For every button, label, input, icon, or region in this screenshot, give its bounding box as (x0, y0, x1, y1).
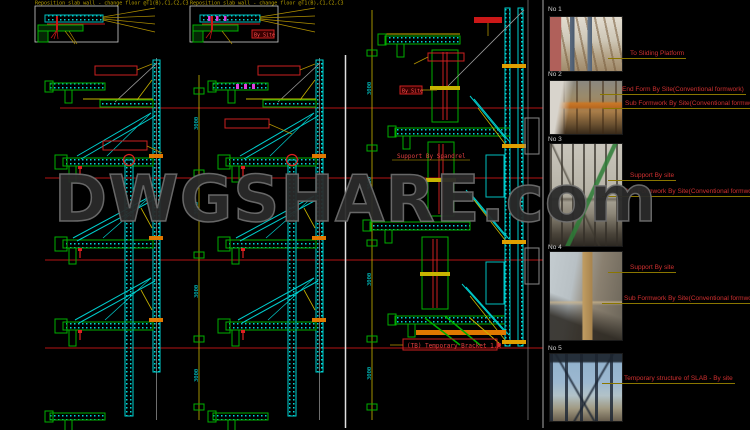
photo-label-5: No 5 (548, 346, 562, 353)
photo-annotation: Sub Formwork By Site(Conventional formwo… (603, 100, 750, 109)
dimension-line-middle: 3000 3000 3000 3000 (367, 10, 377, 420)
bracket-note: (TB) Temporary Bracket 1.X (390, 339, 501, 350)
dim-label: 3000 (367, 82, 373, 95)
photo-no-1 (549, 16, 623, 72)
photo-annotation: Sub Formwork By Site(Conventional formwo… (602, 295, 750, 304)
photo-label-2: No 2 (548, 72, 562, 79)
photo-annotation: End Form By Site(Conventional formwork) (600, 86, 746, 95)
photo-label-1: No 1 (548, 7, 562, 14)
dim-label: 3000 (194, 117, 200, 130)
dim-label: 3000 (194, 202, 200, 215)
photo-no-5 (549, 353, 623, 422)
middle-section: By Site Support By Spandrel (TB) Tempora… (363, 0, 539, 420)
dimension-line-left: 3000 3000 3000 3000 (194, 75, 204, 420)
by-site-label: By Site (252, 30, 275, 39)
detail-box-1-title: Reposition slab wall - change floor @T1(… (35, 1, 189, 7)
dim-label: 3000 (194, 369, 200, 382)
svg-text:By Site: By Site (254, 33, 275, 39)
svg-text:(TB) Temporary Bracket 1.X: (TB) Temporary Bracket 1.X (407, 343, 501, 350)
cad-screenshot: 3000 3000 3000 3000 3000 3000 3000 3000 (0, 0, 750, 430)
wall-section-a (45, 58, 163, 430)
detail-box-2: Reposition slab wall - change floor @T1(… (190, 1, 344, 45)
photo-annotation: To Sliding Platform (608, 50, 686, 59)
photo-annotation: Sub Formwork By Site(Conventional formwo… (602, 188, 750, 197)
photo-annotation: Support By site (608, 172, 676, 181)
wall-section-b (208, 58, 326, 430)
detail-box-1: Reposition slab wall - change floor @T1(… (35, 1, 189, 45)
cad-drawing: 3000 3000 3000 3000 3000 3000 3000 3000 (0, 0, 750, 430)
photo-annotation: Support By site (608, 264, 676, 273)
dim-label: 3000 (367, 367, 373, 380)
svg-text:Support By Spandrel: Support By Spandrel (397, 153, 466, 160)
support-note: Support By Spandrel (392, 153, 470, 160)
dim-label: 3000 (367, 177, 373, 190)
dim-label: 3000 (194, 285, 200, 298)
dim-label: 3000 (367, 273, 373, 286)
detail-box-2-title: Reposition slab wall - change floor @T1(… (190, 1, 344, 7)
photo-annotation: Temporary structure of SLAB - By site (602, 375, 735, 384)
svg-text:By Site: By Site (402, 89, 423, 95)
climbing-rail (448, 0, 539, 420)
